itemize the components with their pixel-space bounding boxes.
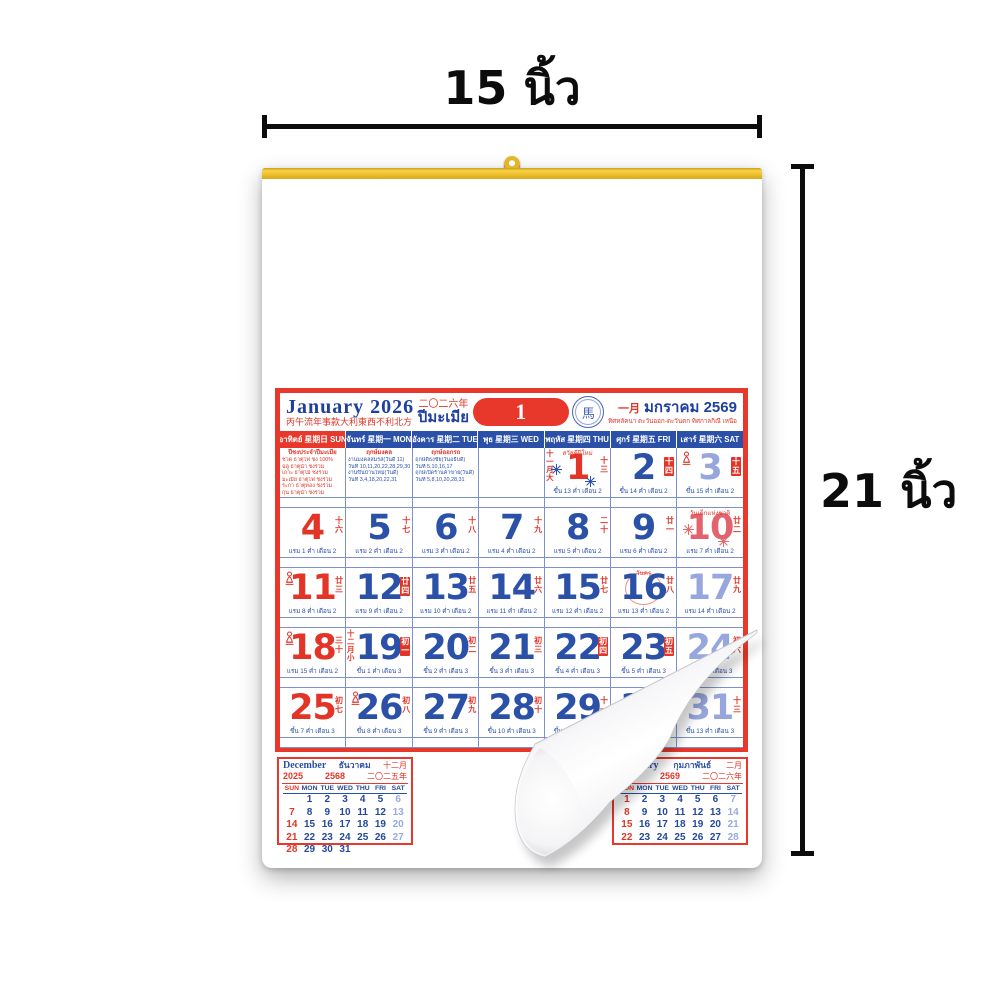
day-cell-main-6: 6十八แรม 3 ค่ำ เดือน 2 bbox=[413, 508, 478, 557]
lunar-day-badge: 廿五 bbox=[468, 577, 476, 594]
dow-header-thu: พฤหัส 星期四 THU bbox=[545, 431, 611, 448]
dow-header-sun: อาทิตย์ 星期日 SUN bbox=[280, 431, 346, 448]
thai-lunar-caption: แรม 6 ค่ำ เดือน 2 bbox=[611, 546, 676, 556]
day-cell-main-31: 31十三ขึ้น 13 ค่ำ เดือน 3 bbox=[677, 688, 743, 737]
fireworks-icon bbox=[585, 474, 596, 492]
cell-strip bbox=[677, 497, 743, 507]
thai-lunar-caption: ขึ้น 13 ค่ำ เดือน 2 bbox=[545, 486, 610, 496]
thai-lunar-caption: แรม 11 ค่ำ เดือน 2 bbox=[479, 606, 544, 616]
day-cell-25: 25初七ขึ้น 7 ค่ำ เดือน 3 bbox=[280, 688, 346, 748]
mini-year: 2026 bbox=[618, 771, 638, 781]
cell-strip bbox=[413, 737, 478, 747]
mini-date-10: 10 bbox=[336, 807, 354, 820]
notes-line-sun-1: ฉลู ธาตุน้ำ ชงร่วม bbox=[282, 464, 343, 471]
thai-lunar-caption: ขึ้น 12 ค่ำ เดือน 3 bbox=[611, 726, 676, 736]
thai-lunar-caption: ขึ้น 9 ค่ำ เดือน 3 bbox=[413, 726, 478, 736]
cell-strip bbox=[346, 497, 412, 507]
day-cell-1: 1สวัสดีปีใหม่十一月大十三ขึ้น 13 ค่ำ เดือน 2 bbox=[545, 448, 611, 508]
mini-date-29: 29 bbox=[301, 844, 319, 857]
stamp-character: 馬 bbox=[582, 403, 595, 422]
lunar-day-badge: 三十 bbox=[335, 637, 343, 654]
dow-header-fri: ศุกร์ 星期五 FRI bbox=[611, 431, 677, 448]
thai-lunar-caption: แรม 7 ค่ำ เดือน 2 bbox=[677, 546, 743, 556]
mini-dow-row: SUNMONTUEWEDTHUFRISAT bbox=[618, 784, 742, 794]
day-cell-12: 12廿四แรม 9 ค่ำ เดือน 2 bbox=[346, 568, 413, 628]
day-cell-8: 8二十แรม 5 ค่ำ เดือน 2 bbox=[545, 508, 611, 568]
day-cell-5: 5十七แรม 2 ค่ำ เดือน 2 bbox=[346, 508, 413, 568]
mini-date-27: 27 bbox=[707, 832, 725, 845]
mini-date-5: 5 bbox=[689, 794, 707, 807]
cell-strip bbox=[346, 737, 412, 747]
lunar-day-badge: 十六 bbox=[335, 517, 343, 534]
day-cell-main-15: 15廿七แรม 12 ค่ำ เดือน 2 bbox=[545, 568, 610, 617]
mini-date-3: 3 bbox=[336, 794, 354, 807]
cell-strip bbox=[413, 557, 478, 567]
month-title-block: January 2026 丙午流年事款大利東西不利北方 bbox=[284, 397, 414, 427]
mini-title-th: กุมภาพันธ์ bbox=[673, 760, 711, 770]
thai-lunar-caption: แรม 4 ค่ำ เดือน 2 bbox=[479, 546, 544, 556]
day-cell-main-16: 16วันครู廿八แรม 13 ค่ำ เดือน 2 bbox=[611, 568, 676, 617]
month-frame: January 2026 丙午流年事款大利東西不利北方 二〇二六年 ปีมะเม… bbox=[275, 388, 748, 752]
mini-date-26: 26 bbox=[372, 832, 390, 845]
lunar-day-badge: 初六 bbox=[733, 637, 741, 654]
thai-lunar-caption: ขึ้น 8 ค่ำ เดือน 3 bbox=[346, 726, 412, 736]
day-cell-9: 9廿一แรม 6 ค่ำ เดือน 2 bbox=[611, 508, 677, 568]
cell-strip bbox=[611, 497, 676, 507]
mini-date-20: 20 bbox=[707, 819, 725, 832]
thai-lunar-caption: แรม 10 ค่ำ เดือน 2 bbox=[413, 606, 478, 616]
mini-header-line2: 20252568二〇二五年 bbox=[283, 771, 407, 782]
mini-date-22: 22 bbox=[301, 832, 319, 845]
mini-date-16: 16 bbox=[636, 819, 654, 832]
year-chinese: 二〇二六年 bbox=[418, 400, 469, 410]
mini-date-18: 18 bbox=[354, 819, 372, 832]
thai-lunar-caption: แรม 2 ค่ำ เดือน 2 bbox=[346, 546, 412, 556]
thai-lunar-caption: แรม 9 ค่ำ เดือน 2 bbox=[346, 606, 412, 616]
notes-title-tue: ฤกษ์ออกรถ bbox=[415, 450, 476, 457]
mini-date-empty bbox=[354, 844, 372, 857]
thai-lunar-caption: ขึ้น 2 ค่ำ เดือน 3 bbox=[413, 666, 478, 676]
mini-dow-mon: MON bbox=[636, 785, 654, 792]
month-header: January 2026 丙午流年事款大利東西不利北方 二〇二六年 ปีมะเม… bbox=[280, 393, 743, 431]
mini-dow-sun: SUN bbox=[283, 785, 301, 792]
height-dimension-line bbox=[800, 164, 805, 856]
mini-date-1: 1 bbox=[618, 794, 636, 807]
fireworks-icon bbox=[683, 522, 694, 540]
day-cell-main-5: 5十七แรม 2 ค่ำ เดือน 2 bbox=[346, 508, 412, 557]
lunar-day-badge: 十八 bbox=[468, 517, 476, 534]
mini-date-17: 17 bbox=[336, 819, 354, 832]
month-title: January 2026 bbox=[286, 397, 414, 418]
thai-lunar-caption: ขึ้น 4 ค่ำ เดือน 3 bbox=[545, 666, 610, 676]
mini-dow-tue: TUE bbox=[318, 785, 336, 792]
day-cell-main-26: 26初八ขึ้น 8 ค่ำ เดือน 3 bbox=[346, 688, 412, 737]
day-cell-22: 22初四ขึ้น 4 ค่ำ เดือน 3 bbox=[545, 628, 611, 688]
lunar-day-badge: 十三 bbox=[600, 457, 608, 474]
notes-line-sun-3: มะเมีย ธาตุไฟ ชงร่วม bbox=[282, 477, 343, 484]
thai-lunar-caption: แรม 5 ค่ำ เดือน 2 bbox=[545, 546, 610, 556]
lunar-day-badge: 初一 bbox=[400, 637, 410, 656]
cell-strip bbox=[611, 677, 676, 687]
mini-dow-fri: FRI bbox=[707, 785, 725, 792]
mini-date-17: 17 bbox=[653, 819, 671, 832]
day-cell-main-29: 29十一ขึ้น 11 ค่ำ เดือน 3 bbox=[545, 688, 610, 737]
buddha-day-icon bbox=[350, 691, 361, 711]
cell-strip bbox=[545, 737, 610, 747]
lunar-day-badge: 初三 bbox=[534, 637, 542, 654]
empty-cell-main bbox=[479, 448, 544, 497]
cell-strip bbox=[545, 557, 610, 567]
day-cell-main-30: 30十二ขึ้น 12 ค่ำ เดือน 3 bbox=[611, 688, 676, 737]
cell-strip bbox=[479, 497, 544, 507]
width-dimension-label: 15 นิ้ว bbox=[262, 52, 762, 125]
lunar-day-badge: 廿八 bbox=[666, 577, 674, 594]
notes-line-sun-2: เถาะ ธาตุไม้ ชงร่วม bbox=[282, 470, 343, 477]
day-cell-main-23: 23初五ขึ้น 5 ค่ำ เดือน 3 bbox=[611, 628, 676, 677]
mini-date-24: 24 bbox=[653, 832, 671, 845]
notes-line-mon-3: วันที่ 3,4,18,20,22,31 bbox=[348, 477, 410, 484]
day-cell-11: 11廿三แรม 8 ค่ำ เดือน 2 bbox=[280, 568, 346, 628]
mini-date-12: 12 bbox=[689, 807, 707, 820]
mini-date-1: 1 bbox=[301, 794, 319, 807]
lunar-day-badge: 廿一 bbox=[666, 517, 674, 534]
lunar-day-badge: 初七 bbox=[335, 697, 343, 714]
day-of-week-header-row: อาทิตย์ 星期日 SUNจันทร์ 星期一 MONอังคาร 星期二 … bbox=[280, 431, 743, 448]
mini-date-28: 28 bbox=[283, 844, 301, 857]
lunar-day-badge: 初四 bbox=[598, 637, 608, 656]
day-cell-main-12: 12廿四แรม 9 ค่ำ เดือน 2 bbox=[346, 568, 412, 617]
mini-month-cn: 十二月 bbox=[383, 761, 407, 771]
cell-strip bbox=[479, 677, 544, 687]
thai-lunar-caption: ขึ้น 1 ค่ำ เดือน 3 bbox=[346, 666, 412, 676]
mini-date-27: 27 bbox=[389, 832, 407, 845]
mini-date-15: 15 bbox=[301, 819, 319, 832]
cell-strip bbox=[545, 497, 610, 507]
mini-year-th: 2568 bbox=[325, 771, 345, 781]
lunar-day-badge: 廿四 bbox=[400, 577, 410, 596]
width-dimension-line bbox=[262, 124, 762, 129]
lunar-day-badge: 十一 bbox=[600, 697, 608, 714]
cell-strip bbox=[677, 557, 743, 567]
height-dimension-label: 21 นิ้ว bbox=[820, 455, 957, 528]
thai-lunar-caption: แรม 14 ค่ำ เดือน 2 bbox=[677, 606, 743, 616]
lunar-day-badge: 初十 bbox=[534, 697, 542, 714]
directions-text: ทิศหลัคนา ตะวันออก-ตะวันตก ทิศกาลกิณี เห… bbox=[608, 418, 737, 425]
day-cell-10: 10วันเด็กแห่งชาติ廿二แรม 7 ค่ำ เดือน 2 bbox=[677, 508, 743, 568]
lunar-day-badge: 初九 bbox=[468, 697, 476, 714]
day-cell-main-8: 8二十แรม 5 ค่ำ เดือน 2 bbox=[545, 508, 610, 557]
month-thai: มกราคม 2569 bbox=[644, 399, 737, 416]
mini-date-11: 11 bbox=[354, 807, 372, 820]
mini-date-30: 30 bbox=[318, 844, 336, 857]
day-cell-26: 26初八ขึ้น 8 ค่ำ เดือน 3 bbox=[346, 688, 413, 748]
mini-date-21: 21 bbox=[283, 832, 301, 845]
mini-date-8: 8 bbox=[618, 807, 636, 820]
thai-lunar-caption: ขึ้น 13 ค่ำ เดือน 3 bbox=[677, 726, 743, 736]
lunar-month-side-label: 十二月小 bbox=[347, 630, 355, 662]
cell-strip bbox=[413, 677, 478, 687]
cell-strip bbox=[413, 617, 478, 627]
mini-date-empty bbox=[389, 844, 407, 857]
day-cell-main-22: 22初四ขึ้น 4 ค่ำ เดือน 3 bbox=[545, 628, 610, 677]
mini-date-9: 9 bbox=[636, 807, 654, 820]
cell-strip bbox=[346, 677, 412, 687]
notes-line-mon-2: งานขึ้นบ้านใหม่(วันดี) bbox=[348, 470, 410, 477]
mini-dow-fri: FRI bbox=[372, 785, 390, 792]
cell-strip bbox=[280, 737, 345, 747]
lunar-day-badge: 二十 bbox=[600, 517, 608, 534]
holiday-label: สวัสดีปีใหม่ bbox=[545, 448, 610, 458]
mini-year: 2025 bbox=[283, 771, 303, 781]
day-cell-4: 4十六แรม 1 ค่ำ เดือน 2 bbox=[280, 508, 346, 568]
mini-title-en: December bbox=[283, 761, 326, 771]
mini-dow-mon: MON bbox=[301, 785, 319, 792]
buddha-day-icon bbox=[284, 571, 295, 591]
zodiac-year-thai: ปีมะเมีย bbox=[418, 410, 469, 425]
day-cell-main-17: 17廿九แรม 14 ค่ำ เดือน 2 bbox=[677, 568, 743, 617]
day-cell-6: 6十八แรม 3 ค่ำ เดือน 2 bbox=[413, 508, 479, 568]
thai-lunar-caption: ขึ้น 15 ค่ำ เดือน 2 bbox=[677, 486, 743, 496]
notes-line-mon-0: งานมงคลสมรส(วันดี 11) bbox=[348, 457, 410, 464]
mini-dow-wed: WED bbox=[671, 785, 689, 792]
cell-strip bbox=[280, 617, 345, 627]
mini-date-7: 7 bbox=[283, 807, 301, 820]
dow-header-mon: จันทร์ 星期一 MON bbox=[346, 431, 412, 448]
lunar-day-badge: 初二 bbox=[468, 637, 476, 654]
day-cell-main-4: 4十六แรม 1 ค่ำ เดือน 2 bbox=[280, 508, 345, 557]
notes-content-tue: ฤกษ์ออกรถฤกษ์ดีธงชัย(วันอธิบดี)วันที่ 5,… bbox=[413, 448, 478, 497]
cell-strip bbox=[611, 617, 676, 627]
month-number: 1 bbox=[515, 399, 526, 425]
day-cell-16: 16วันครู廿八แรม 13 ค่ำ เดือน 2 bbox=[611, 568, 677, 628]
mini-date-grid: 1234567891011121314151617181920212223242… bbox=[283, 794, 407, 857]
thai-lunar-caption: แรม 8 ค่ำ เดือน 2 bbox=[280, 606, 345, 616]
lunar-day-badge: 初五 bbox=[664, 637, 674, 656]
day-cell-main-9: 9廿一แรม 6 ค่ำ เดือน 2 bbox=[611, 508, 676, 557]
lunar-day-badge: 廿九 bbox=[733, 577, 741, 594]
notes-title-sun: ปีชงประจำปีมะเมีย bbox=[282, 450, 343, 457]
mini-date-23: 23 bbox=[636, 832, 654, 845]
empty-cell-wed bbox=[479, 448, 545, 508]
day-cell-19: 19十二月小初一ขึ้น 1 ค่ำ เดือน 3 bbox=[346, 628, 413, 688]
mini-date-18: 18 bbox=[671, 819, 689, 832]
cell-strip bbox=[611, 557, 676, 567]
fireworks-icon bbox=[718, 534, 729, 552]
day-cell-main-10: 10วันเด็กแห่งชาติ廿二แรม 7 ค่ำ เดือน 2 bbox=[677, 508, 743, 557]
day-cell-7: 7十九แรม 4 ค่ำ เดือน 2 bbox=[479, 508, 545, 568]
day-cell-main-20: 20初二ขึ้น 2 ค่ำ เดือน 3 bbox=[413, 628, 478, 677]
notes-line-sun-0: ชวด ธาตุไฟ ชง 100% bbox=[282, 457, 343, 464]
mini-date-4: 4 bbox=[671, 794, 689, 807]
mini-dow-row: SUNMONTUEWEDTHUFRISAT bbox=[283, 784, 407, 794]
day-cell-main-11: 11廿三แรม 8 ค่ำ เดือน 2 bbox=[280, 568, 345, 617]
lunar-day-badge: 十九 bbox=[534, 517, 542, 534]
thai-lunar-caption: ขึ้น 11 ค่ำ เดือน 3 bbox=[545, 726, 610, 736]
mini-year-cn: 二〇二五年 bbox=[367, 772, 407, 782]
cell-strip bbox=[611, 737, 676, 747]
cell-strip bbox=[280, 677, 345, 687]
notes-line-sun-5: กุน ธาตุน้ำ ชงร่วม bbox=[282, 490, 343, 497]
mini-date-9: 9 bbox=[318, 807, 336, 820]
thai-lunar-caption: แรม 1 ค่ำ เดือน 2 bbox=[280, 546, 345, 556]
notes-cell-sun: ปีชงประจำปีมะเมียชวด ธาตุไฟ ชง 100%ฉลู ธ… bbox=[280, 448, 346, 508]
day-cell-21: 21初三ขึ้น 3 ค่ำ เดือน 3 bbox=[479, 628, 545, 688]
thai-lunar-caption: แรม 15 ค่ำ เดือน 2 bbox=[280, 666, 345, 676]
month-grid: ปีชงประจำปีมะเมียชวด ธาตุไฟ ชง 100%ฉลู ธ… bbox=[280, 448, 743, 748]
day-cell-main-1: 1สวัสดีปีใหม่十一月大十三ขึ้น 13 ค่ำ เดือน 2 bbox=[545, 448, 610, 497]
day-cell-main-27: 27初九ขึ้น 9 ค่ำ เดือน 3 bbox=[413, 688, 478, 737]
notes-line-sun-4: ระกา ธาตุทอง ชงร่วม bbox=[282, 483, 343, 490]
notes-cell-tue: ฤกษ์ออกรถฤกษ์ดีธงชัย(วันอธิบดี)วันที่ 5,… bbox=[413, 448, 479, 508]
mini-date-10: 10 bbox=[653, 807, 671, 820]
lunar-day-badge: 廿六 bbox=[534, 577, 542, 594]
day-cell-main-25: 25初七ขึ้น 7 ค่ำ เดือน 3 bbox=[280, 688, 345, 737]
mini-dow-tue: TUE bbox=[653, 785, 671, 792]
mini-date-14: 14 bbox=[283, 819, 301, 832]
mini-date-14: 14 bbox=[724, 807, 742, 820]
mini-date-11: 11 bbox=[671, 807, 689, 820]
buddha-day-icon bbox=[681, 451, 692, 471]
day-cell-main-21: 21初三ขึ้น 3 ค่ำ เดือน 3 bbox=[479, 628, 544, 677]
mini-header-line1: Februaryกุมภาพันธ์二月 bbox=[618, 760, 742, 771]
holiday-label: วันครู bbox=[611, 568, 676, 578]
horse-zodiac-stamp-icon: 馬 bbox=[572, 396, 604, 428]
cell-strip bbox=[346, 617, 412, 627]
cell-strip bbox=[479, 557, 544, 567]
mini-date-3: 3 bbox=[653, 794, 671, 807]
notes-line-tue-2: ฤกษ์เปิดร้านค้าขาย(วันดี) bbox=[415, 470, 476, 477]
mini-year-cn: 二〇二六年 bbox=[702, 772, 742, 782]
mini-date-16: 16 bbox=[318, 819, 336, 832]
mini-dow-thu: THU bbox=[689, 785, 707, 792]
mini-header-line1: Decemberธันวาคม十二月 bbox=[283, 760, 407, 771]
mini-date-23: 23 bbox=[318, 832, 336, 845]
mini-year-th: 2569 bbox=[660, 771, 680, 781]
notes-line-tue-1: วันที่ 5,10,16,17 bbox=[415, 464, 476, 471]
mini-date-grid: 1234567891011121314151617181920212223242… bbox=[618, 794, 742, 844]
day-cell-main-2: 2十四ขึ้น 14 ค่ำ เดือน 2 bbox=[611, 448, 676, 497]
mini-date-2: 2 bbox=[318, 794, 336, 807]
mini-date-5: 5 bbox=[372, 794, 390, 807]
day-cell-main-13: 13廿五แรม 10 ค่ำ เดือน 2 bbox=[413, 568, 478, 617]
thai-month-block: 一月มกราคม 2569 ทิศหลัคนา ตะวันออก-ตะวันตก… bbox=[608, 399, 739, 425]
day-cell-23: 23初五ขึ้น 5 ค่ำ เดือน 3 bbox=[611, 628, 677, 688]
buddha-day-icon bbox=[284, 631, 295, 651]
mini-header-line2: 20262569二〇二六年 bbox=[618, 771, 742, 782]
mini-dow-sun: SUN bbox=[618, 785, 636, 792]
thai-lunar-caption: แรม 12 ค่ำ เดือน 2 bbox=[545, 606, 610, 616]
mini-date-8: 8 bbox=[301, 807, 319, 820]
lunar-day-badge: 十三 bbox=[733, 697, 741, 714]
mini-calendar-february: Februaryกุมภาพันธ์二月20262569二〇二六年SUNMONT… bbox=[612, 757, 748, 845]
notes-title-mon: ฤกษ์มงคล bbox=[348, 450, 410, 457]
mini-title-th: ธันวาคม bbox=[339, 760, 371, 770]
thai-lunar-caption: แรม 13 ค่ำ เดือน 2 bbox=[611, 606, 676, 616]
mini-date-empty bbox=[372, 844, 390, 857]
cell-strip bbox=[677, 677, 743, 687]
day-cell-main-7: 7十九แรม 4 ค่ำ เดือน 2 bbox=[479, 508, 544, 557]
mini-date-12: 12 bbox=[372, 807, 390, 820]
mini-date-6: 6 bbox=[707, 794, 725, 807]
lunar-day-badge: 廿二 bbox=[733, 517, 741, 534]
day-cell-18: 18三十แรม 15 ค่ำ เดือน 2 bbox=[280, 628, 346, 688]
day-cell-20: 20初二ขึ้น 2 ค่ำ เดือน 3 bbox=[413, 628, 479, 688]
mini-dow-thu: THU bbox=[354, 785, 372, 792]
day-cell-24: 24初六ขึ้น 6 ค่ำ เดือน 3 bbox=[677, 628, 743, 688]
day-cell-17: 17廿九แรม 14 ค่ำ เดือน 2 bbox=[677, 568, 743, 628]
cell-strip bbox=[280, 557, 345, 567]
day-cell-30: 30十二ขึ้น 12 ค่ำ เดือน 3 bbox=[611, 688, 677, 748]
day-cell-3: 3十五ขึ้น 15 ค่ำ เดือน 2 bbox=[677, 448, 743, 508]
tin-top-strip bbox=[262, 168, 762, 179]
month-number-oval: 1 bbox=[473, 398, 569, 426]
day-cell-main-18: 18三十แรม 15 ค่ำ เดือน 2 bbox=[280, 628, 345, 677]
day-cell-29: 29十一ขึ้น 11 ค่ำ เดือน 3 bbox=[545, 688, 611, 748]
mini-date-empty bbox=[283, 794, 301, 807]
zodiac-year-block: 二〇二六年 ปีมะเมีย bbox=[418, 400, 469, 425]
notes-line-mon-1: วันที่ 10,11,20,22,28,29,30 bbox=[348, 464, 410, 471]
mini-date-19: 19 bbox=[689, 819, 707, 832]
lunar-day-badge: 十四 bbox=[664, 457, 674, 476]
mini-date-21: 21 bbox=[724, 819, 742, 832]
lunar-day-badge: 初八 bbox=[402, 697, 410, 714]
mini-title-en: February bbox=[618, 761, 659, 771]
mini-dow-sat: SAT bbox=[724, 785, 742, 792]
mini-date-7: 7 bbox=[724, 794, 742, 807]
notes-content-sun: ปีชงประจำปีมะเมียชวด ธาตุไฟ ชง 100%ฉลู ธ… bbox=[280, 448, 345, 497]
day-cell-main-3: 3十五ขึ้น 15 ค่ำ เดือน 2 bbox=[677, 448, 743, 497]
cell-strip bbox=[479, 737, 544, 747]
mini-date-6: 6 bbox=[389, 794, 407, 807]
mini-dow-wed: WED bbox=[336, 785, 354, 792]
thai-lunar-caption: ขึ้น 3 ค่ำ เดือน 3 bbox=[479, 666, 544, 676]
mini-date-19: 19 bbox=[372, 819, 390, 832]
notes-content-mon: ฤกษ์มงคลงานมงคลสมรส(วันดี 11)วันที่ 10,1… bbox=[346, 448, 412, 497]
day-cell-main-24: 24初六ขึ้น 6 ค่ำ เดือน 3 bbox=[677, 628, 743, 677]
lunar-day-badge: 十七 bbox=[402, 517, 410, 534]
mini-date-13: 13 bbox=[389, 807, 407, 820]
mini-month-cn: 二月 bbox=[726, 761, 742, 771]
fortune-text-cn: 丙午流年事款大利東西不利北方 bbox=[286, 418, 414, 427]
lunar-day-badge: 十五 bbox=[731, 457, 741, 476]
day-cell-main-14: 14廿六แรม 11 ค่ำ เดือน 2 bbox=[479, 568, 544, 617]
day-cell-31: 31十三ขึ้น 13 ค่ำ เดือน 3 bbox=[677, 688, 743, 748]
dow-header-sat: เสาร์ 星期六 SAT bbox=[677, 431, 743, 448]
day-cell-27: 27初九ขึ้น 9 ค่ำ เดือน 3 bbox=[413, 688, 479, 748]
day-cell-main-19: 19十二月小初一ขึ้น 1 ค่ำ เดือน 3 bbox=[346, 628, 412, 677]
notes-line-tue-0: ฤกษ์ดีธงชัย(วันอธิบดี) bbox=[415, 457, 476, 464]
day-cell-15: 15廿七แรม 12 ค่ำ เดือน 2 bbox=[545, 568, 611, 628]
mini-date-22: 22 bbox=[618, 832, 636, 845]
fireworks-icon bbox=[551, 462, 562, 480]
mini-date-15: 15 bbox=[618, 819, 636, 832]
cell-strip bbox=[413, 497, 478, 507]
cell-strip bbox=[545, 677, 610, 687]
day-cell-28: 28初十ขึ้น 10 ค่ำ เดือน 3 bbox=[479, 688, 545, 748]
calendar-sheet: January 2026 丙午流年事款大利東西不利北方 二〇二六年 ปีมะเม… bbox=[262, 168, 762, 868]
day-cell-main-28: 28初十ขึ้น 10 ค่ำ เดือน 3 bbox=[479, 688, 544, 737]
mini-date-26: 26 bbox=[689, 832, 707, 845]
dow-header-tue: อังคาร 星期二 TUE bbox=[412, 431, 478, 448]
cell-strip bbox=[280, 497, 345, 507]
cell-strip bbox=[479, 617, 544, 627]
mini-date-24: 24 bbox=[336, 832, 354, 845]
mini-date-2: 2 bbox=[636, 794, 654, 807]
mini-date-25: 25 bbox=[671, 832, 689, 845]
notes-cell-mon: ฤกษ์มงคลงานมงคลสมรส(วันดี 11)วันที่ 10,1… bbox=[346, 448, 413, 508]
thai-lunar-caption: ขึ้น 6 ค่ำ เดือน 3 bbox=[677, 666, 743, 676]
day-cell-2: 2十四ขึ้น 14 ค่ำ เดือน 2 bbox=[611, 448, 677, 508]
